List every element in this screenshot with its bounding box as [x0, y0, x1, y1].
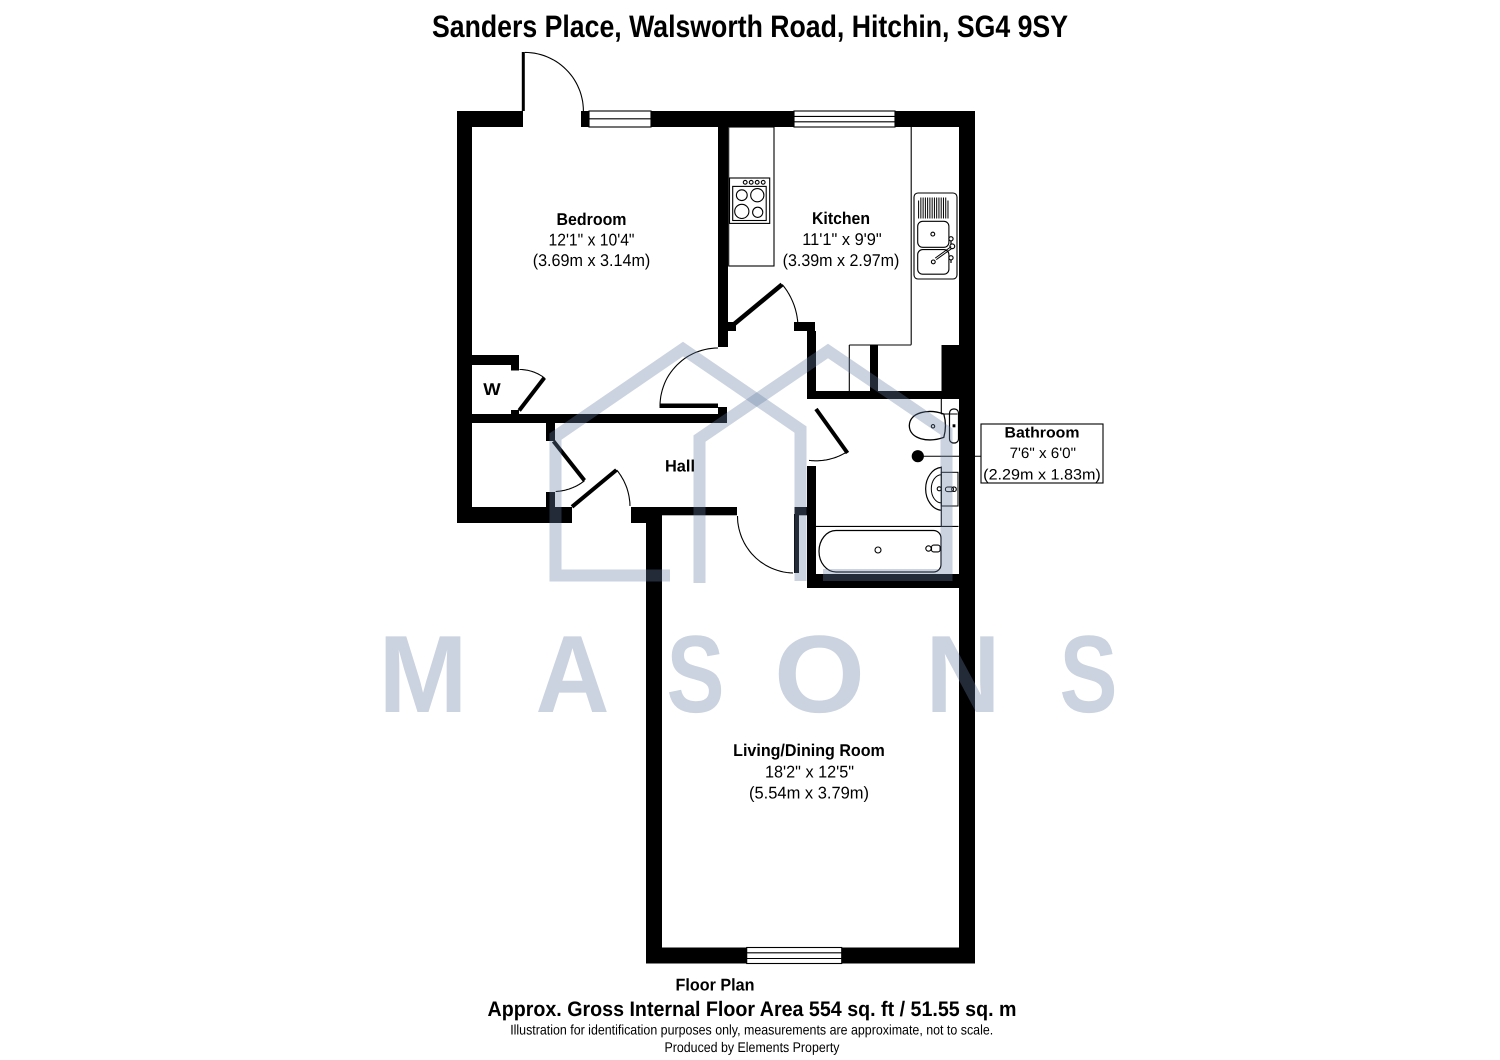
- svg-text:(2.29m x 1.83m): (2.29m x 1.83m): [983, 467, 1101, 484]
- svg-text:S: S: [667, 613, 725, 736]
- svg-text:7'6" x 6'0": 7'6" x 6'0": [1010, 445, 1076, 462]
- svg-text:Bathroom: Bathroom: [1005, 425, 1080, 442]
- svg-text:(3.39m x 2.97m): (3.39m x 2.97m): [783, 251, 900, 270]
- svg-text:(5.54m x 3.79m): (5.54m x 3.79m): [749, 784, 869, 803]
- svg-text:M: M: [379, 613, 468, 736]
- svg-text:(3.69m x 3.14m): (3.69m x 3.14m): [533, 251, 651, 270]
- svg-text:S: S: [1060, 613, 1118, 736]
- svg-text:Living/Dining Room: Living/Dining Room: [733, 741, 885, 760]
- svg-text:Approx. Gross Internal Floor A: Approx. Gross Internal Floor Area 554 sq…: [488, 998, 1017, 1021]
- svg-text:Produced by Elements Property: Produced by Elements Property: [665, 1039, 840, 1055]
- svg-text:N: N: [926, 613, 1001, 736]
- svg-text:12'1" x 10'4": 12'1" x 10'4": [549, 231, 635, 250]
- svg-text:Illustration for identificatio: Illustration for identification purposes…: [510, 1022, 993, 1038]
- svg-text:Sanders Place, Walsworth Road,: Sanders Place, Walsworth Road, Hitchin, …: [432, 9, 1068, 44]
- svg-text:O: O: [774, 613, 865, 736]
- svg-text:Kitchen: Kitchen: [812, 209, 870, 228]
- svg-text:Hall: Hall: [665, 458, 695, 476]
- svg-text:11'1" x 9'9": 11'1" x 9'9": [802, 230, 881, 249]
- svg-text:A: A: [536, 613, 610, 736]
- svg-text:W: W: [483, 380, 501, 399]
- svg-text:Floor Plan: Floor Plan: [676, 976, 755, 995]
- svg-text:18'2" x 12'5": 18'2" x 12'5": [765, 763, 854, 782]
- svg-text:Bedroom: Bedroom: [557, 210, 627, 229]
